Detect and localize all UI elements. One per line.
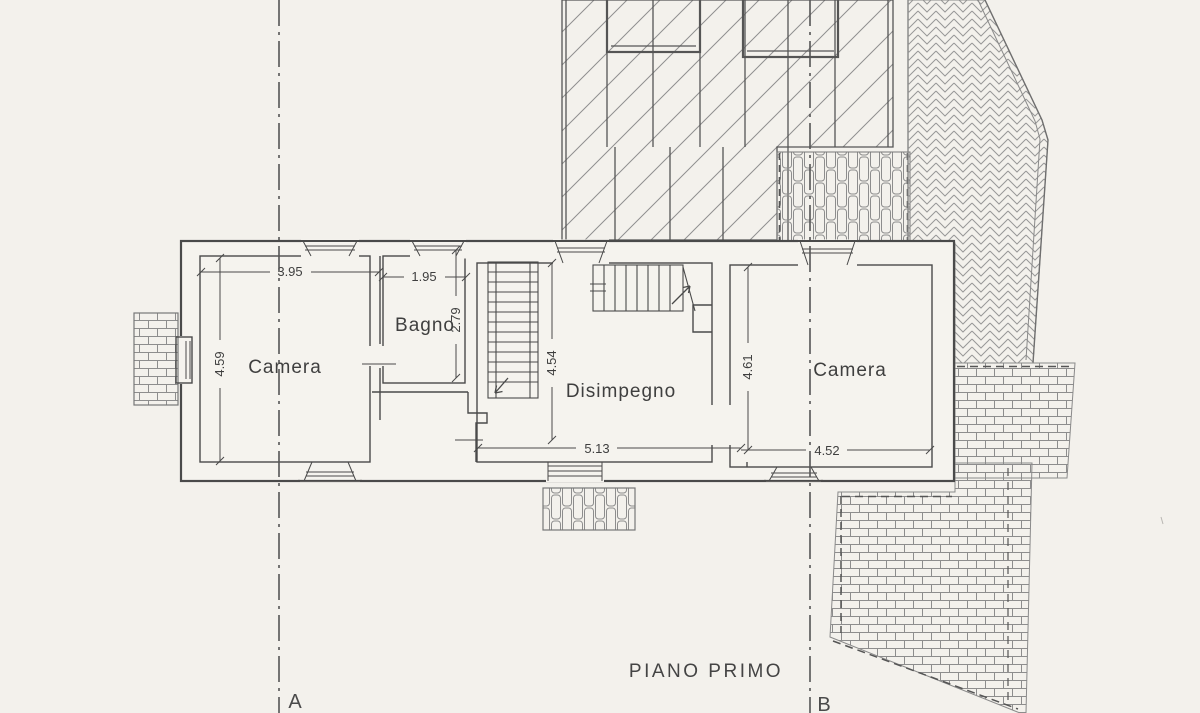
- window-top-1: [298, 240, 362, 259]
- label-camera-left: Camera: [248, 357, 322, 378]
- dim-camera-left-depth: 4.59: [212, 351, 227, 376]
- dim-bagno-width: 1.95: [411, 269, 436, 284]
- label-disimpegno: Disimpegno: [566, 381, 676, 402]
- scanned-floor-plan-page: 3.95 1.95 4.59 2.79 4.54 4.61 5.13 4.52 …: [0, 0, 1200, 713]
- window-bottom-2: [764, 467, 823, 482]
- dim-camera-left-width: 3.95: [277, 264, 302, 279]
- label-bagno: Bagno: [395, 315, 455, 336]
- dim-camera-right-width: 4.52: [814, 443, 839, 458]
- window-left: [176, 336, 197, 384]
- balcony-left: [134, 313, 178, 405]
- paved-landing-bottom: [543, 488, 635, 530]
- dim-stair-hall-depth: 4.54: [544, 350, 559, 375]
- floor-plan-svg: 3.95 1.95 4.59 2.79 4.54 4.61 5.13 4.52 …: [0, 0, 1200, 713]
- window-top-4: [796, 240, 859, 267]
- section-marker-b: B: [817, 694, 830, 713]
- window-top-2: [407, 240, 469, 259]
- window-top-3: [551, 240, 611, 265]
- dim-disimpegno-width: 5.13: [584, 441, 609, 456]
- brick-terrace-upper: [955, 363, 1075, 478]
- door-bottom-terrace: [546, 462, 604, 482]
- window-bottom-1: [298, 462, 362, 482]
- label-camera-right: Camera: [813, 360, 887, 381]
- section-marker-a: A: [288, 691, 302, 713]
- tile-band: [777, 152, 910, 242]
- plan-title: PIANO PRIMO: [629, 661, 783, 682]
- dim-camera-right-depth: 4.61: [740, 354, 755, 379]
